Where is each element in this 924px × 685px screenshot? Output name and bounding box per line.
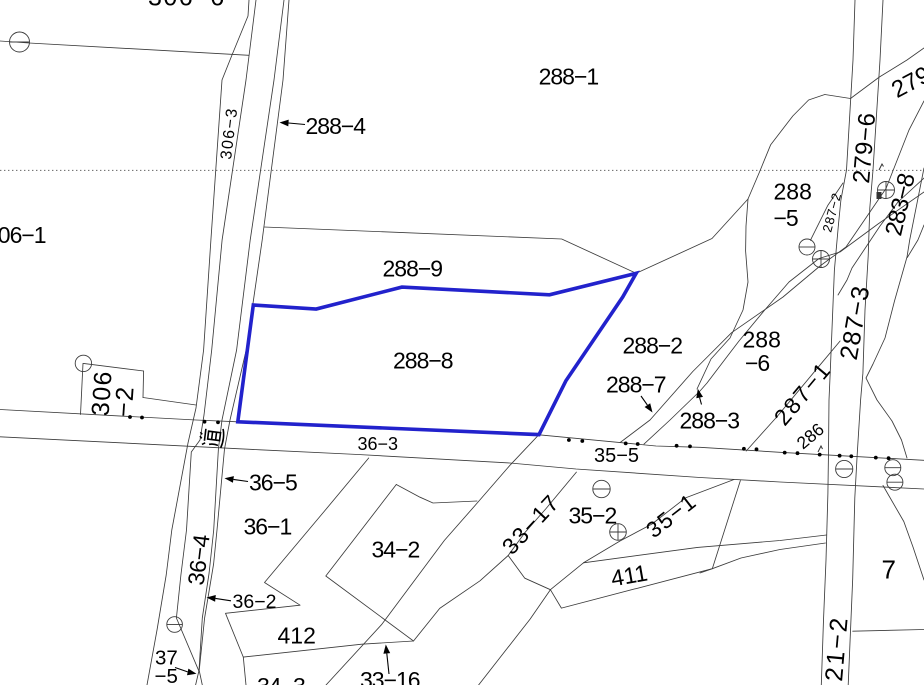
svg-text:7: 7 [882,555,896,585]
svg-text:288−8: 288−8 [393,348,453,374]
svg-text:35−5: 35−5 [594,445,639,467]
svg-text:34−2: 34−2 [372,537,420,563]
svg-text:21−2: 21−2 [820,614,854,682]
svg-text:−6: −6 [745,350,769,376]
svg-text:288−9: 288−9 [383,256,443,282]
svg-text:−5: −5 [774,205,798,231]
svg-text:36−1: 36−1 [244,514,292,540]
svg-text:412: 412 [278,623,316,649]
svg-text:288−4: 288−4 [306,113,367,139]
svg-text:36−5: 36−5 [249,470,297,496]
svg-text:35−2: 35−2 [569,503,617,529]
svg-text:288−2: 288−2 [623,333,683,359]
svg-text:288−7: 288−7 [606,372,666,398]
svg-text:288−1: 288−1 [539,64,599,90]
svg-text:306−1: 306−1 [0,222,46,248]
svg-text:288: 288 [774,179,812,205]
svg-text:306−6: 306−6 [148,0,226,12]
svg-text:288: 288 [743,327,781,353]
svg-text:36−2: 36−2 [233,591,277,613]
svg-text:33−16: 33−16 [360,667,420,685]
svg-text:34−3: 34−3 [257,673,305,685]
svg-text:288−3: 288−3 [680,408,740,434]
svg-text:−5: −5 [155,665,178,685]
svg-text:−2: −2 [110,385,140,418]
svg-text:36−3: 36−3 [358,434,399,454]
